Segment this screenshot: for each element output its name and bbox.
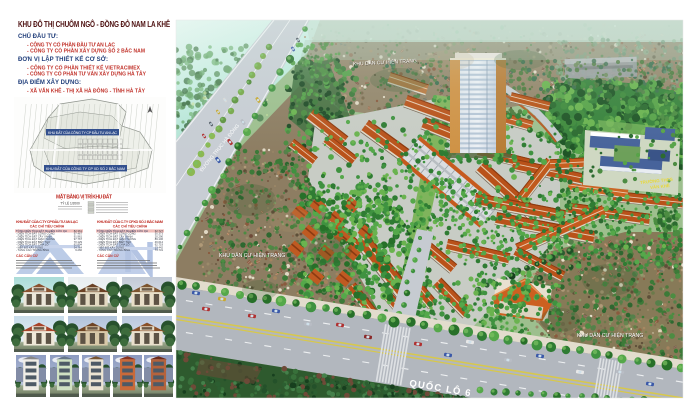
svg-text:CÁC CHỈ TIÊU CHÍNH: CÁC CHỈ TIÊU CHÍNH [30,224,65,229]
svg-text:KHU ĐẤT CỦA CÔNG TY CP ĐẦU TƯ: KHU ĐẤT CỦA CÔNG TY CP ĐẦU TƯ AN LẠC [48,130,117,135]
svg-text:CÁC CHỈ TIÊU CHÍNH: CÁC CHỈ TIÊU CHÍNH [113,224,148,229]
svg-text:KHU ĐẤT CỦA CÔNG TY CP XD SỐ 2: KHU ĐẤT CỦA CÔNG TY CP XD SỐ 2 BẮC NAM [46,166,125,171]
svg-text:73.731: 73.731 [155,248,164,252]
svg-text:- TẦNG CAO TRUNG BÌNH: - TẦNG CAO TRUNG BÌNH [97,248,130,252]
svg-text:- CÔNG TY CỔ PHẦN THIẾT KẾ VIE: - CÔNG TY CỔ PHẦN THIẾT KẾ VIETRACIMEX [27,64,141,72]
svg-text:KHU ĐẤT CỦA C.TY CPXD SỐ 2 BẮC: KHU ĐẤT CỦA C.TY CPXD SỐ 2 BẮC NAM [97,219,163,224]
svg-text:ĐƠN VỊ LẬP THIẾT KẾ CƠ SỞ:: ĐƠN VỊ LẬP THIẾT KẾ CƠ SỞ: [18,56,108,63]
svg-text:CÁC CĂN CỨ: CÁC CĂN CỨ [97,253,119,258]
svg-text:KHU ĐÔ THỊ CHUÔM NGÔ - ĐỒNG ĐỎ: KHU ĐÔ THỊ CHUÔM NGÔ - ĐỒNG ĐỎ NAM LA KH… [18,18,170,29]
svg-text:9.260: 9.260 [75,248,82,252]
svg-text:ĐỊA ĐIỂM XÂY DỰNG:: ĐỊA ĐIỂM XÂY DỰNG: [18,79,81,86]
svg-text:MẶT BẰNG VỊ TRÍ KHU ĐẤT: MẶT BẰNG VỊ TRÍ KHU ĐẤT [56,193,112,201]
svg-text:CÁC CĂN CỨ: CÁC CĂN CỨ [16,253,38,258]
svg-text:- CÔNG TY CỔ PHẦN TƯ VẤN XÂY D: - CÔNG TY CỔ PHẦN TƯ VẤN XÂY DỰNG HÀ TÂY [27,70,147,78]
svg-text:- TẦNG CAO TRUNG BÌNH: - TẦNG CAO TRUNG BÌNH [16,248,49,252]
svg-text:- XÃ VĂN KHÊ - THỊ XÃ HÀ ĐÔNG: - XÃ VĂN KHÊ - THỊ XÃ HÀ ĐÔNG - TỈNH HÀ … [27,87,146,95]
svg-text:TỶ LỆ 1/2000: TỶ LỆ 1/2000 [60,201,80,206]
svg-text:KHU ĐẤT CỦA C.TY CP ĐẦU TƯ AN: KHU ĐẤT CỦA C.TY CP ĐẦU TƯ AN LẠC [16,219,78,224]
svg-text:- CÔNG TY CỔ PHẦN ĐẦU TƯ AN LẠ: - CÔNG TY CỔ PHẦN ĐẦU TƯ AN LẠC [27,41,115,49]
svg-text:CHỦ ĐẦU TƯ:: CHỦ ĐẦU TƯ: [18,33,58,40]
svg-text:- CÔNG TY CỔ PHẦN XÂY DỰNG SỐ: - CÔNG TY CỔ PHẦN XÂY DỰNG SỐ 2 BẮC NAM [27,47,145,55]
